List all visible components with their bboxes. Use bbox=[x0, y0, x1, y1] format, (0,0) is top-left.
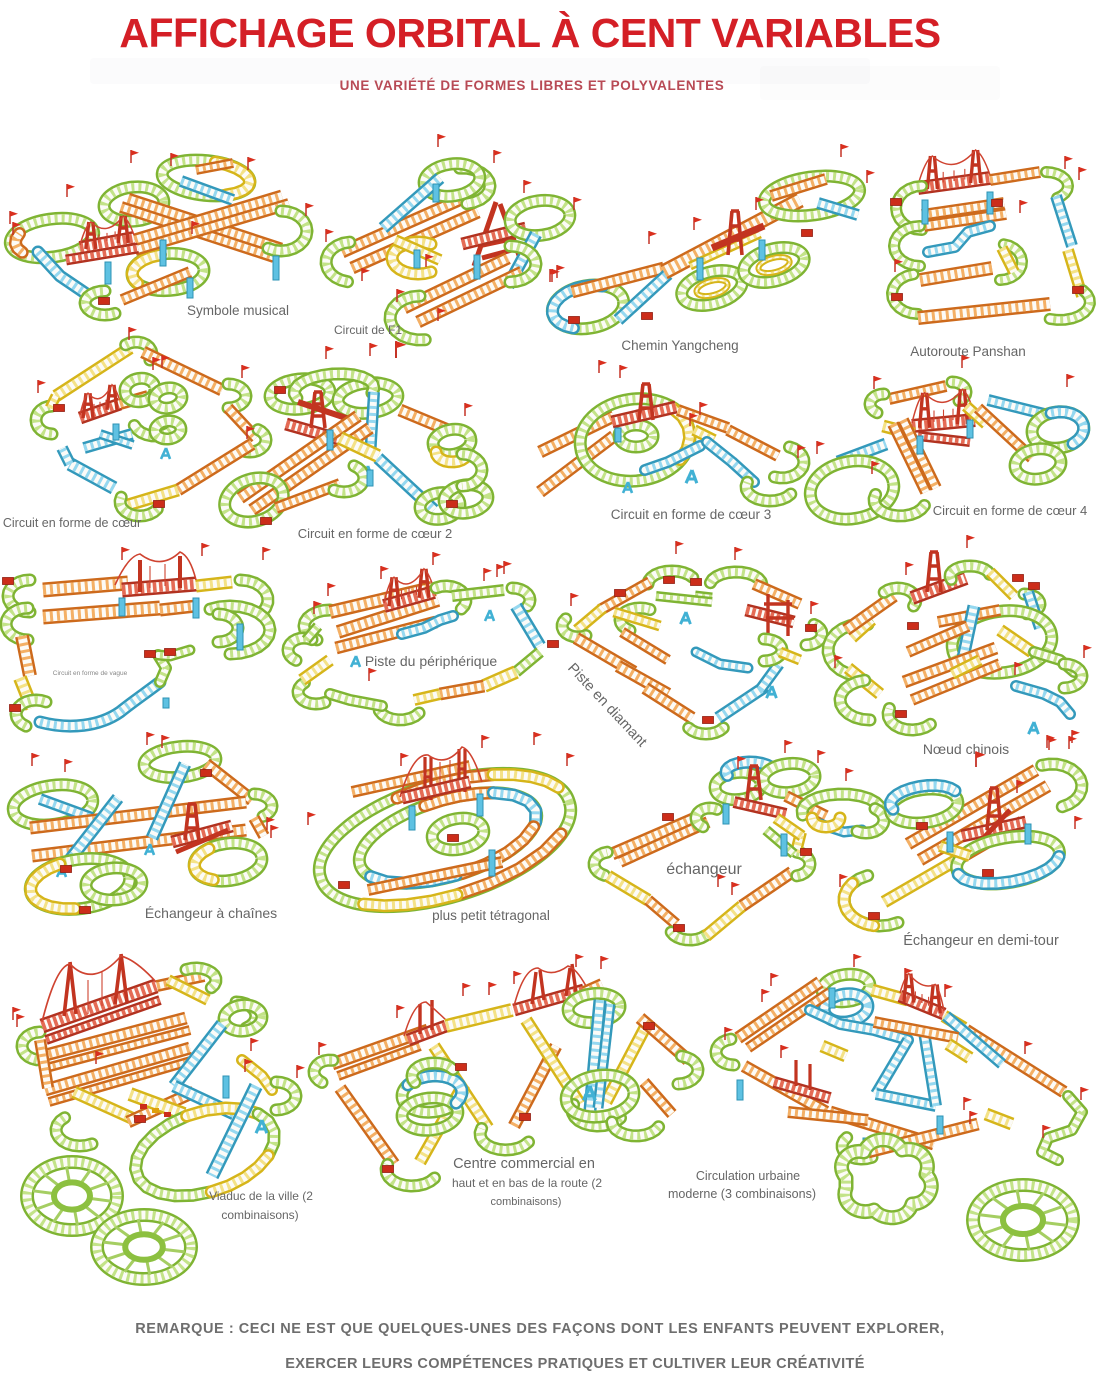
svg-text:Viaduc de la ville (2: Viaduc de la ville (2 bbox=[209, 1189, 313, 1203]
svg-text:Circuit de F1: Circuit de F1 bbox=[334, 323, 402, 337]
svg-text:Nœud chinois: Nœud chinois bbox=[923, 741, 1009, 757]
svg-text:haut et en bas de la route (2: haut et en bas de la route (2 bbox=[452, 1176, 602, 1190]
svg-text:UNE VARIÉTÉ DE FORMES LIBRES E: UNE VARIÉTÉ DE FORMES LIBRES ET POLYVALE… bbox=[340, 78, 725, 93]
svg-text:Autoroute Panshan: Autoroute Panshan bbox=[910, 344, 1026, 359]
svg-text:Échangeur en demi-tour: Échangeur en demi-tour bbox=[903, 932, 1059, 949]
svg-text:combinaisons): combinaisons) bbox=[491, 1196, 562, 1208]
svg-text:Centre commercial en: Centre commercial en bbox=[453, 1156, 595, 1172]
svg-text:EXERCER LEURS COMPÉTENCES PRAT: EXERCER LEURS COMPÉTENCES PRATIQUES ET C… bbox=[285, 1355, 865, 1372]
svg-text:Piste du périphérique: Piste du périphérique bbox=[365, 653, 498, 669]
svg-text:combinaisons): combinaisons) bbox=[221, 1208, 298, 1222]
svg-text:Circulation urbaine: Circulation urbaine bbox=[696, 1169, 800, 1183]
svg-text:Échangeur à chaînes: Échangeur à chaînes bbox=[145, 905, 277, 921]
svg-text:REMARQUE : CECI NE EST QUE QUE: REMARQUE : CECI NE EST QUE QUELQUES-UNES… bbox=[135, 1321, 944, 1337]
svg-text:Circuit en forme de vague: Circuit en forme de vague bbox=[53, 670, 128, 677]
svg-text:Chemin Yangcheng: Chemin Yangcheng bbox=[621, 338, 738, 353]
svg-text:Circuit en forme de cœur: Circuit en forme de cœur bbox=[3, 516, 141, 530]
svg-text:plus petit tétragonal: plus petit tétragonal bbox=[432, 908, 550, 923]
svg-text:moderne (3 combinaisons): moderne (3 combinaisons) bbox=[668, 1187, 816, 1201]
svg-text:Circuit en forme de cœur 2: Circuit en forme de cœur 2 bbox=[298, 526, 453, 541]
svg-text:Circuit en forme de cœur 4: Circuit en forme de cœur 4 bbox=[933, 503, 1088, 518]
svg-text:Circuit en forme de cœur 3: Circuit en forme de cœur 3 bbox=[611, 507, 772, 522]
svg-text:échangeur: échangeur bbox=[666, 861, 742, 878]
svg-text:Symbole musical: Symbole musical bbox=[187, 303, 289, 318]
svg-text:AFFICHAGE ORBITAL À CENT VARIA: AFFICHAGE ORBITAL À CENT VARIABLES bbox=[119, 10, 940, 56]
